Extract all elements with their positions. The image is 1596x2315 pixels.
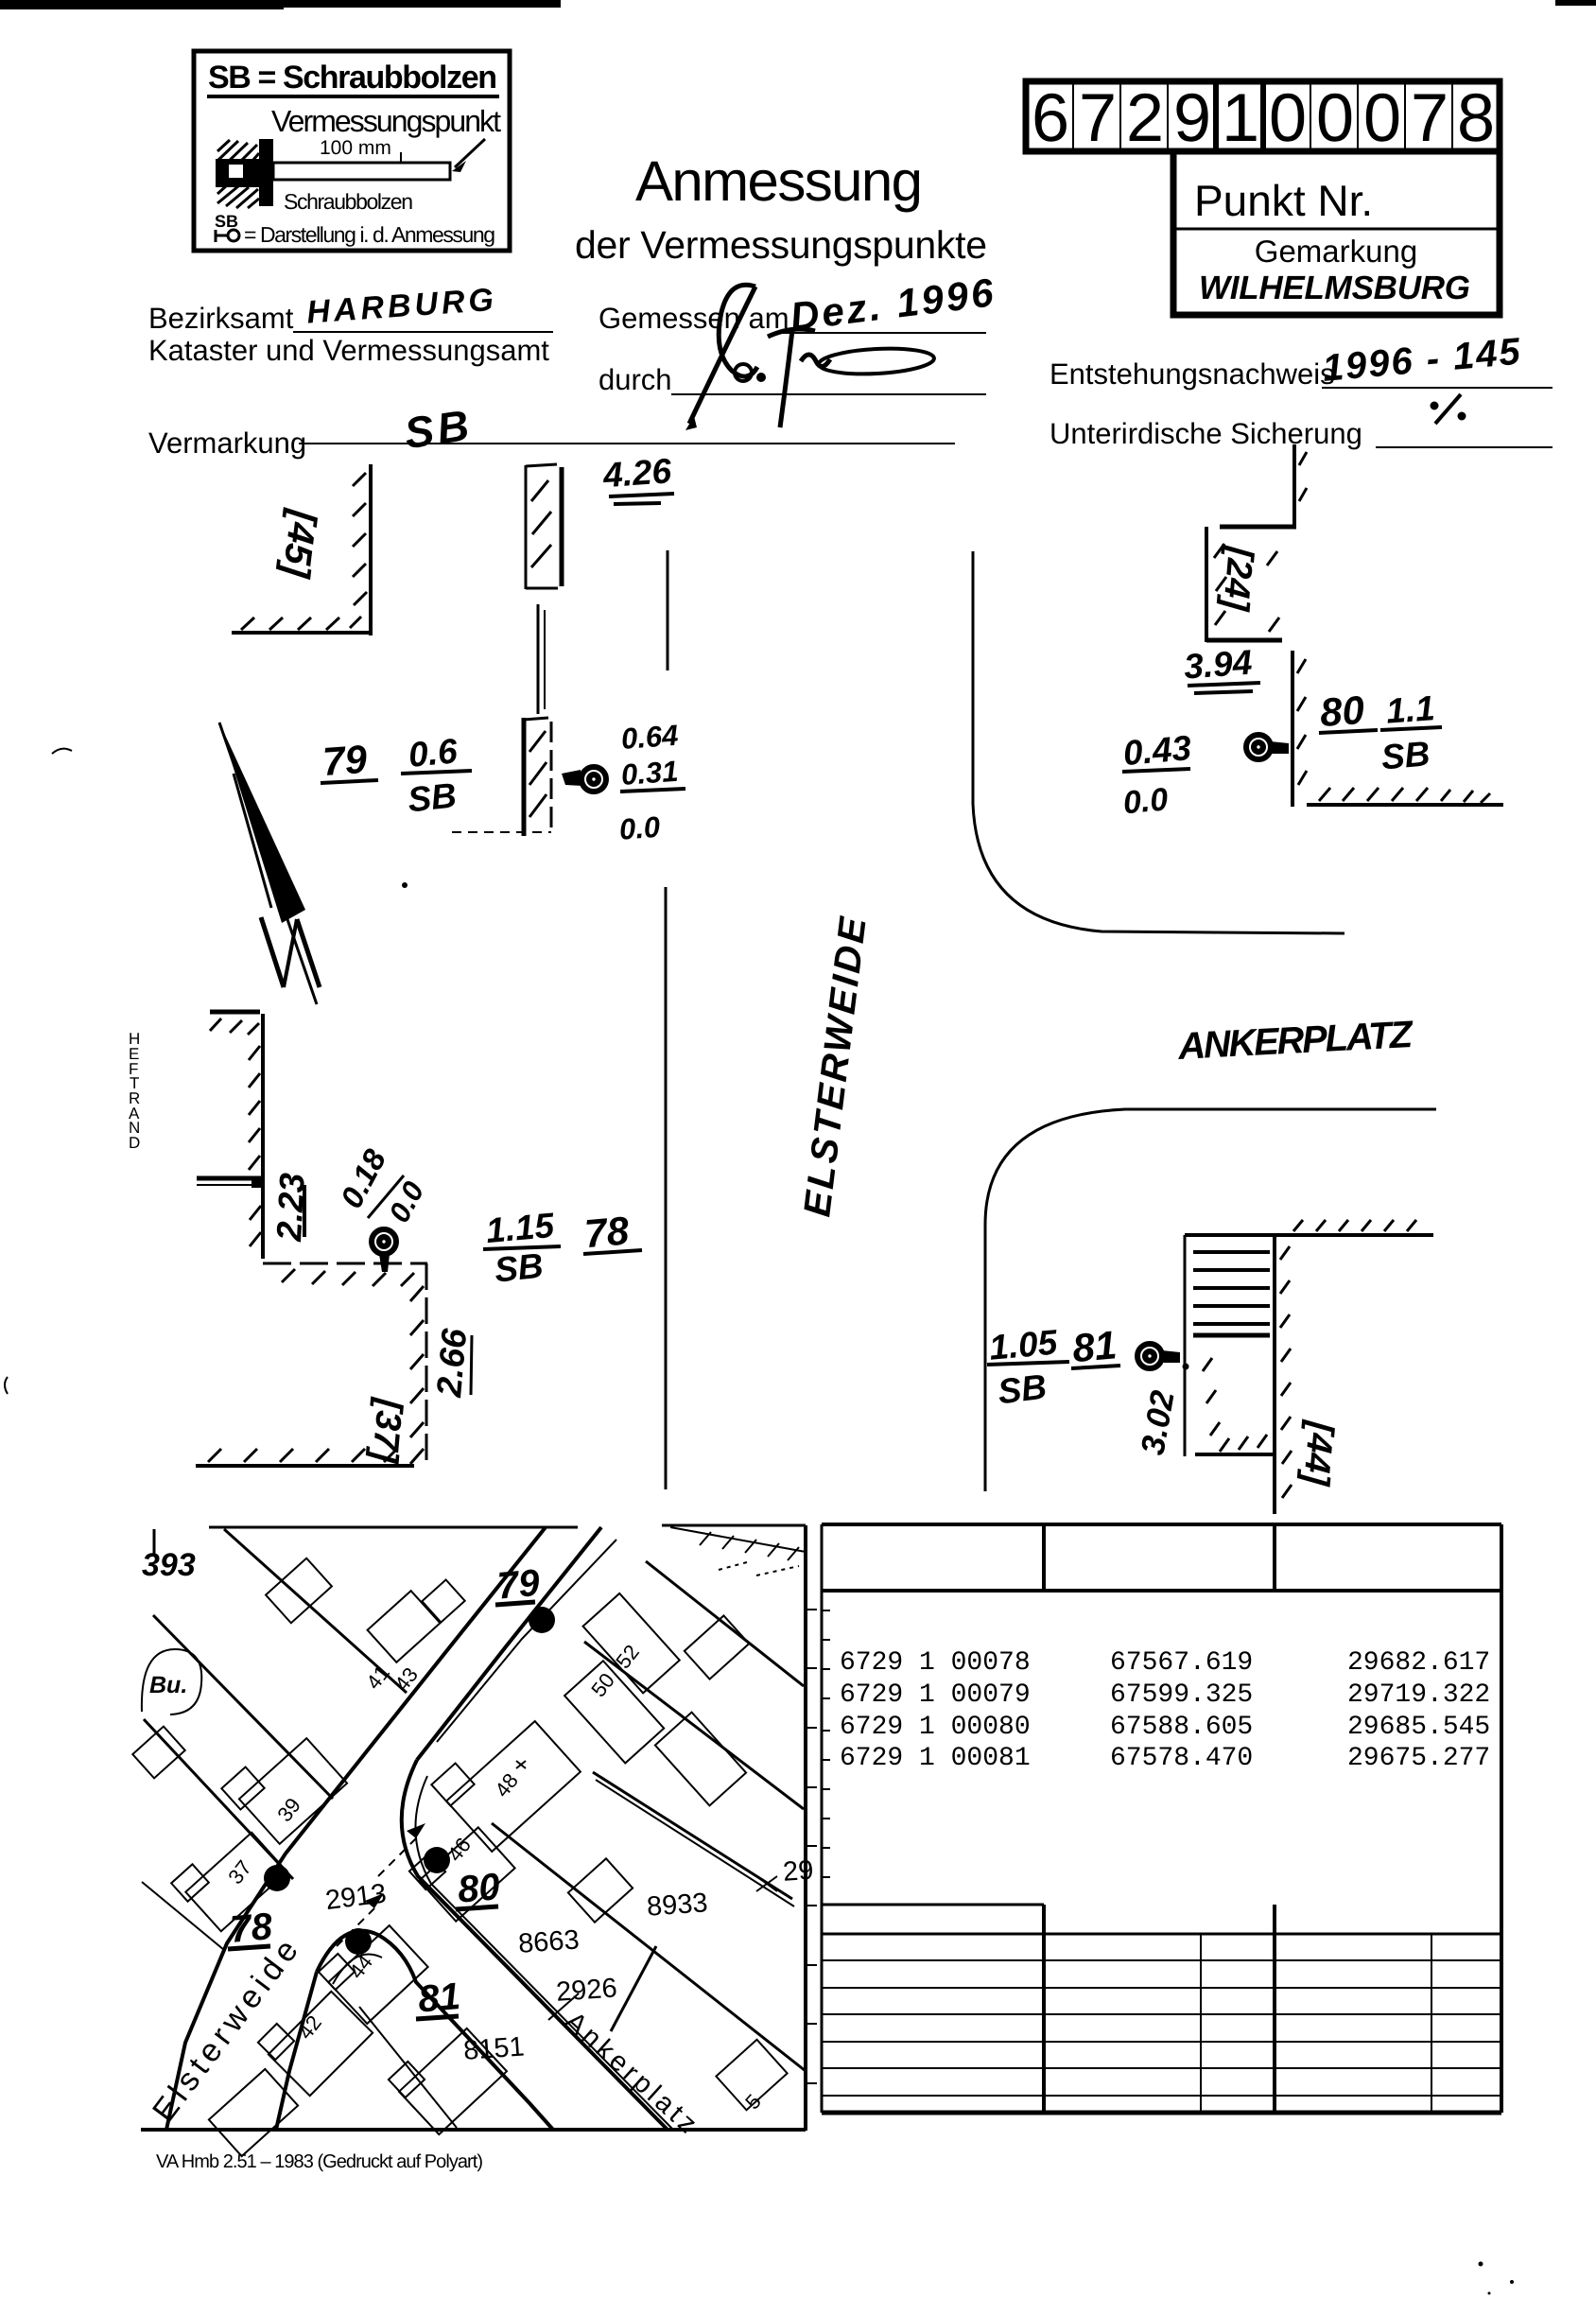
svg-text:79: 79 bbox=[321, 737, 370, 784]
svg-text:29: 29 bbox=[782, 1855, 814, 1888]
svg-text:D: D bbox=[129, 1134, 140, 1152]
svg-text:81: 81 bbox=[1070, 1322, 1119, 1370]
svg-text:SB: SB bbox=[215, 212, 238, 231]
svg-text:8663: 8663 bbox=[517, 1924, 581, 1958]
svg-text:Schraubbolzen: Schraubbolzen bbox=[284, 189, 413, 214]
svg-text:Kataster und Vermessungsamt: Kataster und Vermessungsamt bbox=[148, 334, 549, 367]
svg-text:Anmessung: Anmessung bbox=[635, 149, 923, 213]
svg-text:SB: SB bbox=[1379, 734, 1431, 776]
svg-text:SB: SB bbox=[406, 775, 458, 819]
svg-text:1.15: 1.15 bbox=[484, 1206, 557, 1250]
svg-text:9: 9 bbox=[1173, 80, 1211, 156]
svg-text:81: 81 bbox=[416, 1976, 461, 2021]
svg-text:durch: durch bbox=[598, 363, 672, 396]
svg-text:Vermessungspunkt: Vermessungspunkt bbox=[271, 104, 501, 138]
svg-text:Unterirdische Sicherung: Unterirdische Sicherung bbox=[1050, 417, 1362, 450]
svg-text:SB: SB bbox=[996, 1367, 1049, 1412]
svg-text:100 mm: 100 mm bbox=[320, 137, 391, 159]
svg-text:29719.322: 29719.322 bbox=[1347, 1680, 1490, 1710]
svg-text:1: 1 bbox=[1222, 80, 1259, 156]
svg-text:1.05: 1.05 bbox=[988, 1323, 1061, 1367]
svg-text:8933: 8933 bbox=[646, 1888, 709, 1922]
svg-text:29685.545: 29685.545 bbox=[1347, 1713, 1490, 1742]
svg-text:0: 0 bbox=[1269, 80, 1307, 156]
svg-text:0.31: 0.31 bbox=[620, 755, 680, 792]
svg-text:2.66: 2.66 bbox=[429, 1327, 474, 1400]
svg-text:4.26: 4.26 bbox=[601, 451, 673, 495]
svg-text:6729 1 00078: 6729 1 00078 bbox=[840, 1648, 1031, 1678]
svg-text:SB = Schraubbolzen: SB = Schraubbolzen bbox=[208, 60, 497, 96]
svg-text:Bezirksamt: Bezirksamt bbox=[148, 302, 294, 335]
svg-text:Gemarkung: Gemarkung bbox=[1255, 234, 1417, 269]
svg-text:Punkt Nr.: Punkt Nr. bbox=[1194, 176, 1373, 225]
svg-text:WILHELMSBURG: WILHELMSBURG bbox=[1199, 270, 1475, 306]
svg-text:67567.619: 67567.619 bbox=[1110, 1648, 1253, 1678]
svg-text:0.0: 0.0 bbox=[1121, 781, 1169, 821]
svg-text:[44]: [44] bbox=[1295, 1419, 1341, 1488]
svg-text:8151: 8151 bbox=[462, 2031, 526, 2065]
svg-text:[45]: [45] bbox=[274, 506, 324, 582]
svg-text:0.64: 0.64 bbox=[620, 719, 680, 756]
svg-text:[24]: [24] bbox=[1215, 544, 1260, 613]
svg-text:0: 0 bbox=[1316, 80, 1354, 156]
svg-text:= Darstellung i. d. Anmessung: = Darstellung i. d. Anmessung bbox=[244, 222, 495, 247]
svg-text:80: 80 bbox=[456, 1866, 501, 1911]
svg-text:0.6: 0.6 bbox=[407, 731, 459, 774]
svg-text:29675.277: 29675.277 bbox=[1347, 1744, 1490, 1773]
svg-text:0.0: 0.0 bbox=[618, 810, 661, 846]
svg-text:3.94: 3.94 bbox=[1183, 643, 1254, 687]
svg-text:67599.325: 67599.325 bbox=[1110, 1680, 1253, 1710]
svg-text:0.43: 0.43 bbox=[1121, 728, 1193, 773]
svg-text:67578.470: 67578.470 bbox=[1110, 1744, 1253, 1773]
svg-text:78: 78 bbox=[582, 1208, 631, 1256]
svg-text:6729 1 00079: 6729 1 00079 bbox=[840, 1680, 1031, 1710]
svg-text:0: 0 bbox=[1363, 80, 1401, 156]
svg-text:8: 8 bbox=[1457, 80, 1495, 156]
svg-text:393: 393 bbox=[142, 1547, 196, 1583]
svg-text:7: 7 bbox=[1411, 80, 1449, 156]
svg-text:Entstehungsnachweis: Entstehungsnachweis bbox=[1050, 357, 1335, 391]
svg-text:VA Hmb 2.51 – 1983 (Gedruckt a: VA Hmb 2.51 – 1983 (Gedruckt auf Polyart… bbox=[156, 2151, 483, 2172]
svg-text:SB: SB bbox=[493, 1246, 545, 1290]
svg-text:der Vermessungspunkte: der Vermessungspunkte bbox=[575, 223, 987, 267]
svg-text:6729 1 00081: 6729 1 00081 bbox=[840, 1744, 1031, 1773]
svg-text:SB: SB bbox=[402, 400, 476, 459]
svg-text:80: 80 bbox=[1319, 688, 1366, 735]
svg-text:6729 1 00080: 6729 1 00080 bbox=[840, 1713, 1031, 1742]
svg-text:2926: 2926 bbox=[555, 1973, 618, 2007]
svg-text:1.1: 1.1 bbox=[1385, 688, 1436, 730]
svg-text:2: 2 bbox=[1126, 80, 1164, 156]
svg-text:7: 7 bbox=[1079, 80, 1117, 156]
svg-text:Gemessen am: Gemessen am bbox=[598, 302, 789, 335]
svg-text:67588.605: 67588.605 bbox=[1110, 1713, 1253, 1742]
svg-text:29682.617: 29682.617 bbox=[1347, 1648, 1490, 1678]
svg-text:[37]: [37] bbox=[364, 1396, 409, 1465]
svg-text:Bu.: Bu. bbox=[149, 1672, 187, 1698]
svg-text:Vermarkung: Vermarkung bbox=[148, 426, 306, 460]
svg-text:6: 6 bbox=[1032, 80, 1069, 156]
